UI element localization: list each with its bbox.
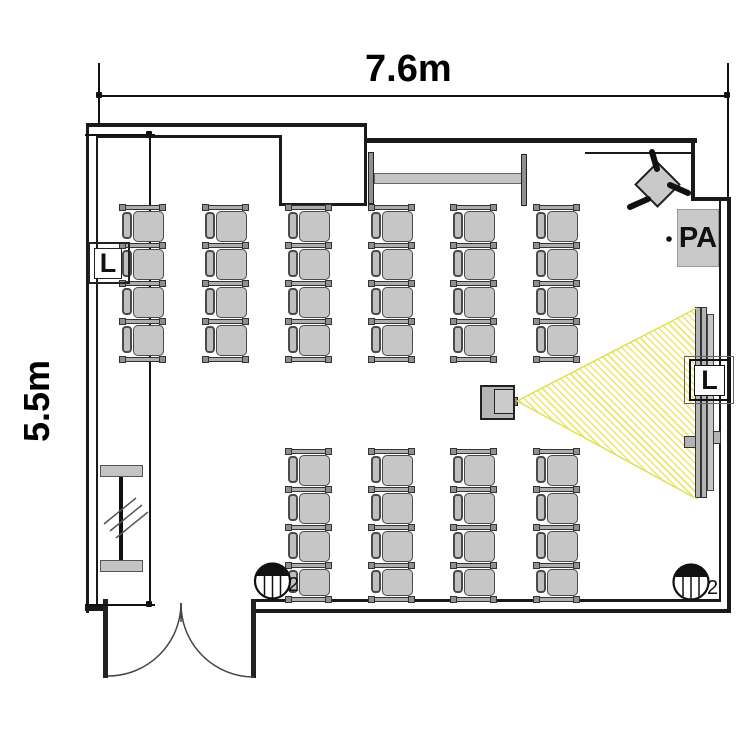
chair-seat xyxy=(464,325,495,356)
seat-row-bar-cap xyxy=(490,318,497,325)
chair-backrest xyxy=(536,494,546,521)
seat-row-bar-cap xyxy=(490,524,497,531)
seat-row-bar-cap xyxy=(450,562,457,569)
chair-seat xyxy=(382,249,413,280)
chair-backrest xyxy=(453,326,463,353)
chair-seat xyxy=(382,493,413,524)
chair-seat xyxy=(299,493,330,524)
chair-seat xyxy=(216,325,247,356)
seat-row-bar-cap xyxy=(368,486,375,493)
seat-row-bar-cap xyxy=(159,318,166,325)
seat-row-bar-cap xyxy=(285,524,292,531)
wall-bottom-outer xyxy=(255,609,731,613)
wall-top-right-inner xyxy=(585,152,691,154)
chair-backrest xyxy=(371,250,381,277)
seat-row-bar-cap xyxy=(490,562,497,569)
chair-backrest xyxy=(288,250,298,277)
chair-seat xyxy=(547,287,578,318)
whiteboard-rail xyxy=(374,173,522,184)
chair-seat xyxy=(464,493,495,524)
seat-row-bar-cap xyxy=(533,486,540,493)
seat-row-bar-cap xyxy=(285,242,292,249)
seat-row-bar-cap xyxy=(368,448,375,455)
door-arc-right xyxy=(181,603,254,677)
floor-marker-right-icon xyxy=(674,564,709,600)
chair-backrest xyxy=(288,212,298,239)
seat-row-bar-cap xyxy=(490,596,497,603)
pa-dot-icon xyxy=(666,236,672,242)
seat-row-bar-cap xyxy=(450,204,457,211)
chair-seat xyxy=(464,531,495,562)
chair-seat xyxy=(382,287,413,318)
chair-seat xyxy=(133,287,164,318)
chair-backrest xyxy=(371,494,381,521)
chair-backrest xyxy=(288,532,298,559)
seat-row-bar-cap xyxy=(285,204,292,211)
seat-row-bar-cap xyxy=(573,318,580,325)
seat-row-bar-cap xyxy=(450,524,457,531)
dimension-tick xyxy=(96,92,102,98)
projector-beam xyxy=(0,0,750,750)
seat-row-bar-cap xyxy=(325,562,332,569)
seat-row-bar-cap xyxy=(408,242,415,249)
chair-backrest xyxy=(536,250,546,277)
loudspeaker-right-label: L xyxy=(701,365,718,396)
seat-row-bar-cap xyxy=(450,596,457,603)
chair-backrest xyxy=(371,570,381,593)
seat-row-bar-cap xyxy=(490,448,497,455)
seat-row-bar-cap xyxy=(119,204,126,211)
chair-backrest xyxy=(288,456,298,483)
seat-row-bar-cap xyxy=(202,242,209,249)
seat-row-bar-cap xyxy=(325,486,332,493)
seat-row-bar-cap xyxy=(450,280,457,287)
seat-row-bar-cap xyxy=(408,448,415,455)
seat-row-bar-cap xyxy=(533,204,540,211)
chair-seat xyxy=(464,211,495,242)
seat-row-bar-cap xyxy=(408,204,415,211)
chair-seat xyxy=(216,249,247,280)
chair-backrest xyxy=(536,532,546,559)
dimension-tick xyxy=(146,131,152,137)
chair-seat xyxy=(299,287,330,318)
projector-top xyxy=(494,389,514,414)
seat-row-bar-cap xyxy=(533,280,540,287)
room-height-label: 5.5m xyxy=(16,330,58,442)
seat-row-bar-cap xyxy=(368,204,375,211)
seat-row-bar-cap xyxy=(325,204,332,211)
chair-backrest xyxy=(205,288,215,315)
dimension-ext-left-bottom xyxy=(85,604,155,606)
chair-seat xyxy=(464,569,495,596)
chair-backrest xyxy=(288,326,298,353)
seat-row-bar-cap xyxy=(533,356,540,363)
chair-seat xyxy=(547,249,578,280)
seat-row-bar-cap xyxy=(450,448,457,455)
chair-backrest xyxy=(122,326,132,353)
chair-backrest xyxy=(453,532,463,559)
chair-seat xyxy=(547,325,578,356)
seat-row-bar-cap xyxy=(325,318,332,325)
wall-left-outer xyxy=(86,123,89,613)
loudspeaker-left-label: L xyxy=(100,248,117,279)
seat-row-bar-cap xyxy=(533,596,540,603)
door-jamb-right xyxy=(251,599,256,678)
seat-row-bar-cap xyxy=(573,204,580,211)
seat-row-bar-cap xyxy=(325,242,332,249)
seat-row-bar-cap xyxy=(285,448,292,455)
chair-seat xyxy=(382,455,413,486)
chair-seat xyxy=(299,325,330,356)
seat-row-bar-cap xyxy=(368,280,375,287)
chair-backrest xyxy=(371,212,381,239)
seat-row-bar-cap xyxy=(450,486,457,493)
chair-backrest xyxy=(205,212,215,239)
seat-row-bar-cap xyxy=(533,242,540,249)
seat-row-bar-cap xyxy=(450,242,457,249)
chair-backrest xyxy=(453,288,463,315)
seat-row-bar-cap xyxy=(325,596,332,603)
loudspeaker-right: L xyxy=(694,365,725,396)
dimension-tick xyxy=(724,92,730,98)
chair-backrest xyxy=(453,250,463,277)
seat-row-bar-cap xyxy=(408,356,415,363)
chair-seat xyxy=(133,249,164,280)
chair-seat xyxy=(547,211,578,242)
chair-seat xyxy=(299,569,330,596)
dimension-ext-top-right xyxy=(727,63,729,198)
chair-seat xyxy=(299,211,330,242)
seat-row-bar-cap xyxy=(408,486,415,493)
seat-row-bar-cap xyxy=(325,356,332,363)
chair-backrest xyxy=(205,250,215,277)
seat-row-bar-cap xyxy=(490,242,497,249)
chair-backrest xyxy=(536,212,546,239)
seat-row-bar-cap xyxy=(159,356,166,363)
pa-label: PA xyxy=(679,222,717,255)
chair-backrest xyxy=(371,288,381,315)
wall-notch-vertical xyxy=(691,138,695,200)
chair-backrest xyxy=(288,494,298,521)
seat-row-bar-cap xyxy=(285,486,292,493)
floor-plan-canvas: 7.6m 5.5m PA xyxy=(0,0,750,750)
chair-seat xyxy=(133,325,164,356)
seat-row-bar-cap xyxy=(490,356,497,363)
seat-row-bar-cap xyxy=(159,204,166,211)
seat-row-bar-cap xyxy=(450,318,457,325)
seat-row-bar-cap xyxy=(202,204,209,211)
seat-row-bar-cap xyxy=(285,318,292,325)
seat-row-bar-cap xyxy=(368,596,375,603)
chair-backrest xyxy=(122,288,132,315)
seat-row-bar-cap xyxy=(573,280,580,287)
seat-row-bar-cap xyxy=(242,204,249,211)
rack-hatch-marks xyxy=(104,498,148,538)
chair-backrest xyxy=(371,326,381,353)
chair-seat xyxy=(382,211,413,242)
seat-row-bar-cap xyxy=(408,280,415,287)
whiteboard-bracket-right xyxy=(521,154,527,206)
seat-row-bar-cap xyxy=(368,524,375,531)
wall-left-inner xyxy=(96,135,98,605)
chair-backrest xyxy=(288,288,298,315)
chair-backrest xyxy=(453,212,463,239)
seat-row-bar-cap xyxy=(490,280,497,287)
seat-row-bar-cap xyxy=(325,524,332,531)
seat-row-bar-cap xyxy=(408,562,415,569)
rack-bar-bottom xyxy=(100,560,143,572)
wall-notch-horizontal xyxy=(691,197,731,201)
chair-backrest xyxy=(536,570,546,593)
chair-backrest xyxy=(453,456,463,483)
double-door xyxy=(108,603,254,677)
screen-bracket xyxy=(713,431,721,444)
rack-pole xyxy=(119,477,123,560)
presenter-table xyxy=(634,161,681,208)
dimension-line-top xyxy=(99,95,729,97)
seat-row-bar-cap xyxy=(202,280,209,287)
seat-row-bar-cap xyxy=(325,280,332,287)
seat-row-bar-cap xyxy=(573,242,580,249)
wall-top-step xyxy=(364,123,367,206)
seat-row-bar-cap xyxy=(159,242,166,249)
seat-row-bar-cap xyxy=(573,524,580,531)
seat-row-bar-cap xyxy=(368,356,375,363)
chair-backrest xyxy=(536,326,546,353)
chair-seat xyxy=(216,287,247,318)
seat-row-bar-cap xyxy=(573,562,580,569)
seat-row-bar-cap xyxy=(368,242,375,249)
chair-backrest xyxy=(205,326,215,353)
seat-row-bar-cap xyxy=(242,356,249,363)
seat-row-bar-cap xyxy=(573,448,580,455)
seat-row-bar-cap xyxy=(119,318,126,325)
chair-seat xyxy=(382,325,413,356)
seat-row-bar-cap xyxy=(285,280,292,287)
wall-right-outer xyxy=(727,199,731,613)
chair-seat xyxy=(547,531,578,562)
seat-row-bar-cap xyxy=(368,318,375,325)
wall-top-right-outer xyxy=(367,138,697,143)
loudspeaker-left: L xyxy=(94,248,122,279)
chair-seat xyxy=(464,249,495,280)
chair-seat xyxy=(382,531,413,562)
chair-backrest xyxy=(453,570,463,593)
seat-row-bar-cap xyxy=(119,356,126,363)
dimension-ext-left-top xyxy=(85,134,155,136)
chair-seat xyxy=(299,455,330,486)
wall-top-left-outer xyxy=(86,123,367,127)
seat-row-bar-cap xyxy=(325,448,332,455)
seat-row-bar-cap xyxy=(285,596,292,603)
seat-row-bar-cap xyxy=(490,204,497,211)
chair-seat xyxy=(464,455,495,486)
chair-seat xyxy=(547,455,578,486)
seat-row-bar-cap xyxy=(533,318,540,325)
floor-marker-left-number: 2 xyxy=(288,574,299,597)
seat-row-bar-cap xyxy=(285,562,292,569)
chair-seat xyxy=(547,569,578,596)
chair-seat xyxy=(133,211,164,242)
chair-backrest xyxy=(371,532,381,559)
chair-backrest xyxy=(453,494,463,521)
seat-row-bar-cap xyxy=(202,356,209,363)
chair-seat xyxy=(547,493,578,524)
chair-seat xyxy=(382,569,413,596)
seat-row-bar-cap xyxy=(408,524,415,531)
seat-row-bar-cap xyxy=(533,524,540,531)
seat-row-bar-cap xyxy=(573,356,580,363)
chair-backrest xyxy=(122,212,132,239)
seat-row-bar-cap xyxy=(408,318,415,325)
chair-seat xyxy=(464,287,495,318)
door-jamb-left xyxy=(103,599,108,678)
pa-unit: PA xyxy=(677,209,719,267)
chair-backrest xyxy=(536,288,546,315)
screen-bracket xyxy=(684,436,696,448)
chair-seat xyxy=(216,211,247,242)
wall-bumpout-left xyxy=(279,135,282,206)
floor-marker-right-number: 2 xyxy=(707,577,718,600)
seat-row-bar-cap xyxy=(242,280,249,287)
seat-row-bar-cap xyxy=(573,596,580,603)
chair-seat xyxy=(299,249,330,280)
chair-backrest xyxy=(371,456,381,483)
chair-seat xyxy=(299,531,330,562)
door-arc-left xyxy=(108,603,181,676)
seat-row-bar-cap xyxy=(202,318,209,325)
seat-row-bar-cap xyxy=(285,356,292,363)
seat-row-bar-cap xyxy=(533,562,540,569)
seat-row-bar-cap xyxy=(242,242,249,249)
seat-row-bar-cap xyxy=(533,448,540,455)
seat-row-bar-cap xyxy=(159,280,166,287)
seat-row-bar-cap xyxy=(242,318,249,325)
seat-row-bar-cap xyxy=(368,562,375,569)
seat-row-bar-cap xyxy=(490,486,497,493)
seat-row-bar-cap xyxy=(450,356,457,363)
room-width-label: 7.6m xyxy=(365,48,452,91)
chair-backrest xyxy=(536,456,546,483)
rack-bar-top xyxy=(100,465,143,477)
projector-lens xyxy=(514,397,518,406)
seat-row-bar-cap xyxy=(573,486,580,493)
seat-row-bar-cap xyxy=(408,596,415,603)
dimension-tick xyxy=(146,601,152,607)
